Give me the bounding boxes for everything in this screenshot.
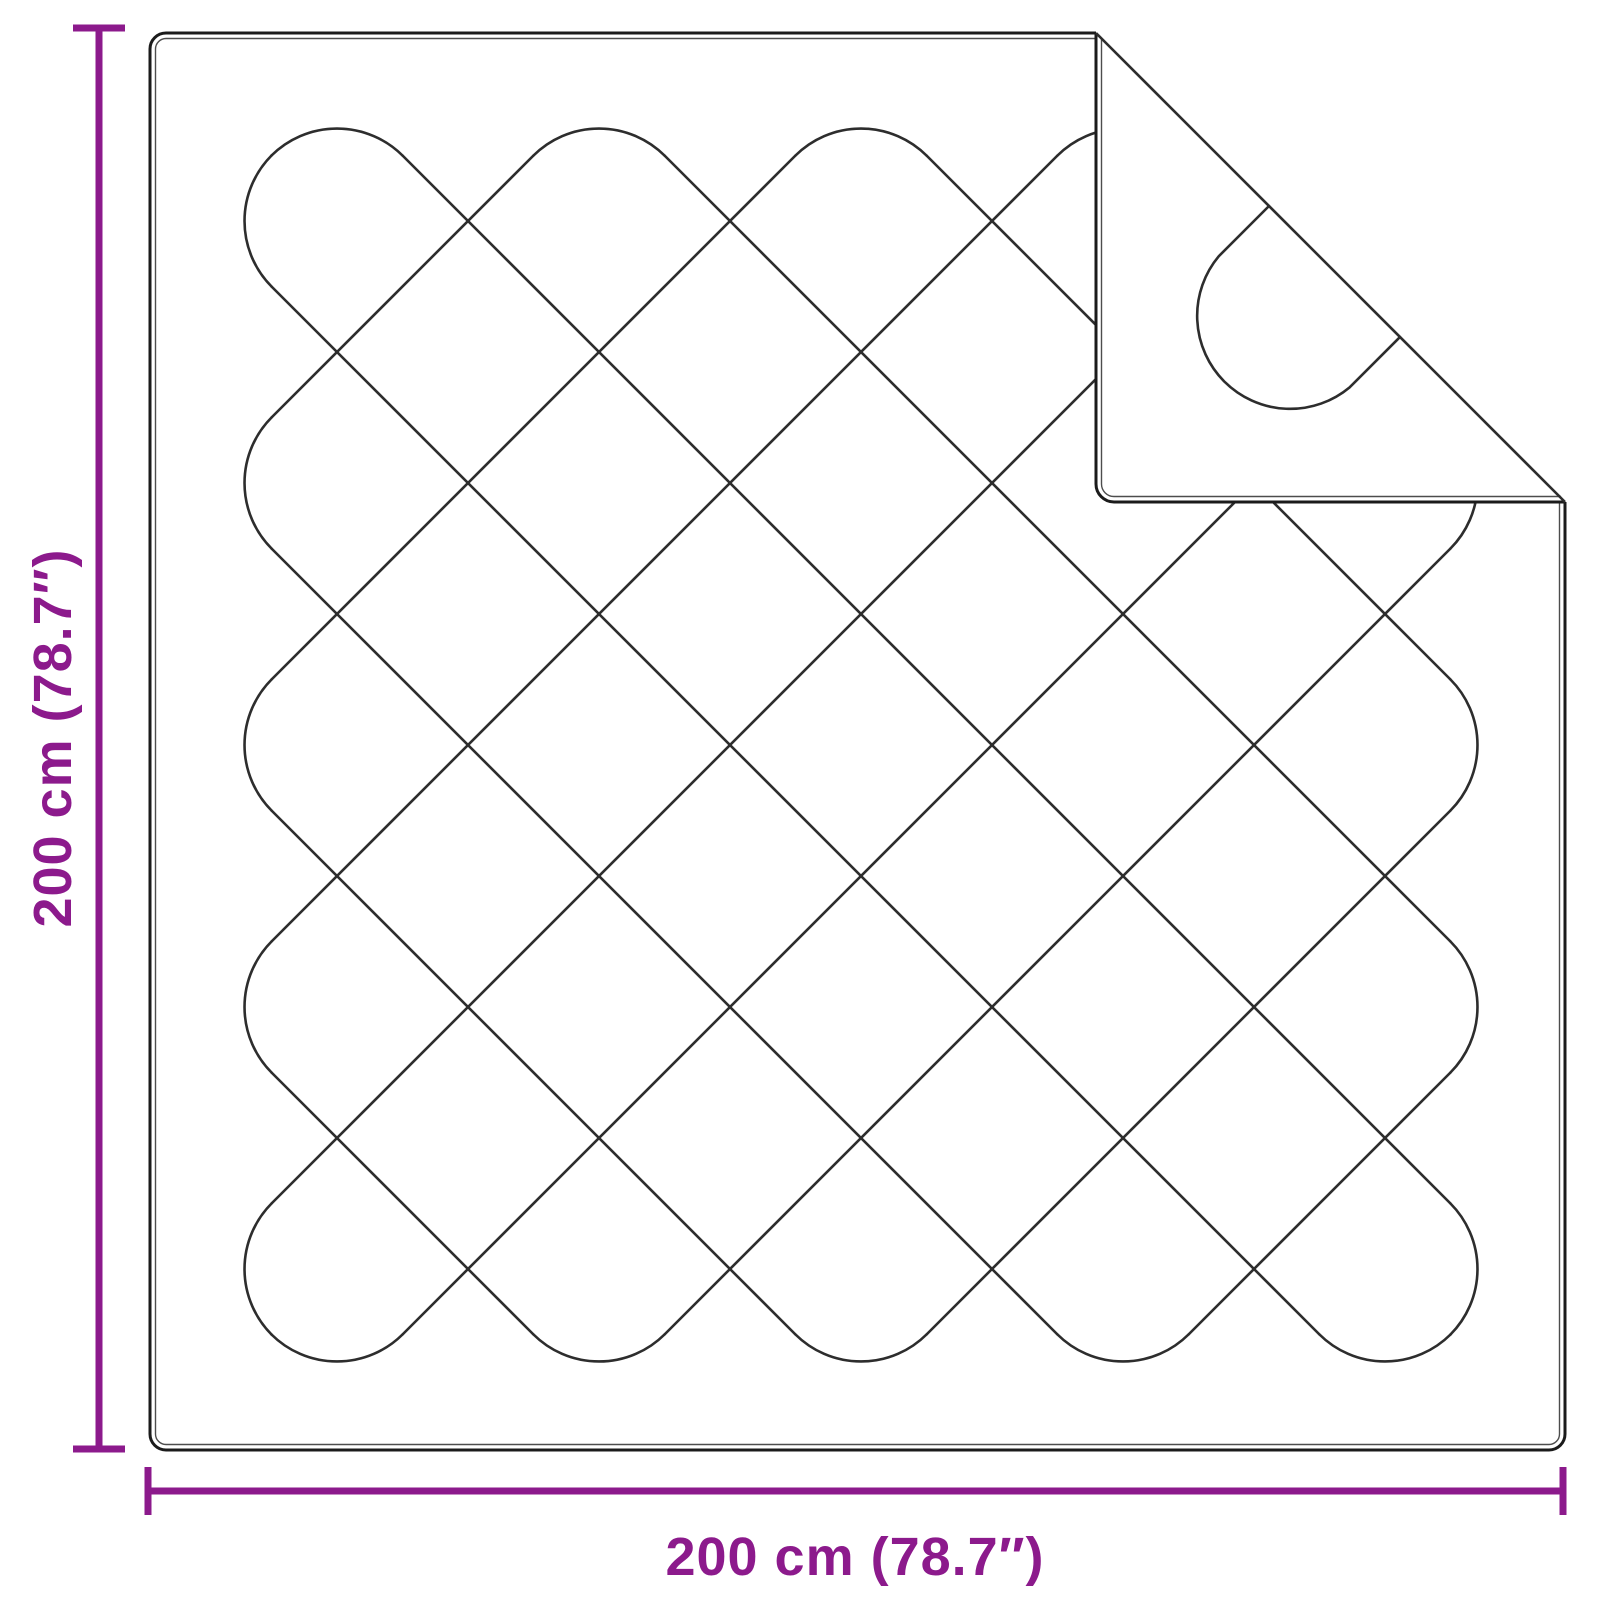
width-dimension-left-cap [145,1467,152,1515]
height-dimension-top-cap [73,25,125,32]
dimension-diagram: 200 cm (78.7″) 200 cm (78.7″) [0,0,1600,1600]
folded-corner-flap [1096,33,1565,502]
diagram-canvas: 200 cm (78.7″) 200 cm (78.7″) [0,0,1600,1600]
width-dimension-right-cap [1560,1467,1567,1515]
width-dimension-shaft [148,1488,1563,1495]
height-dimension-bottom-cap [73,1446,125,1453]
width-label: 200 cm (78.7″) [665,1527,1044,1587]
width-dimension-line [145,1467,1567,1515]
height-dimension-shaft [96,28,103,1449]
stitch-turn-arc [1450,155,1477,287]
blanket-body [150,33,1565,1450]
stitch-turn-arc [1319,129,1451,156]
height-label: 200 cm (78.7″) [23,548,83,927]
